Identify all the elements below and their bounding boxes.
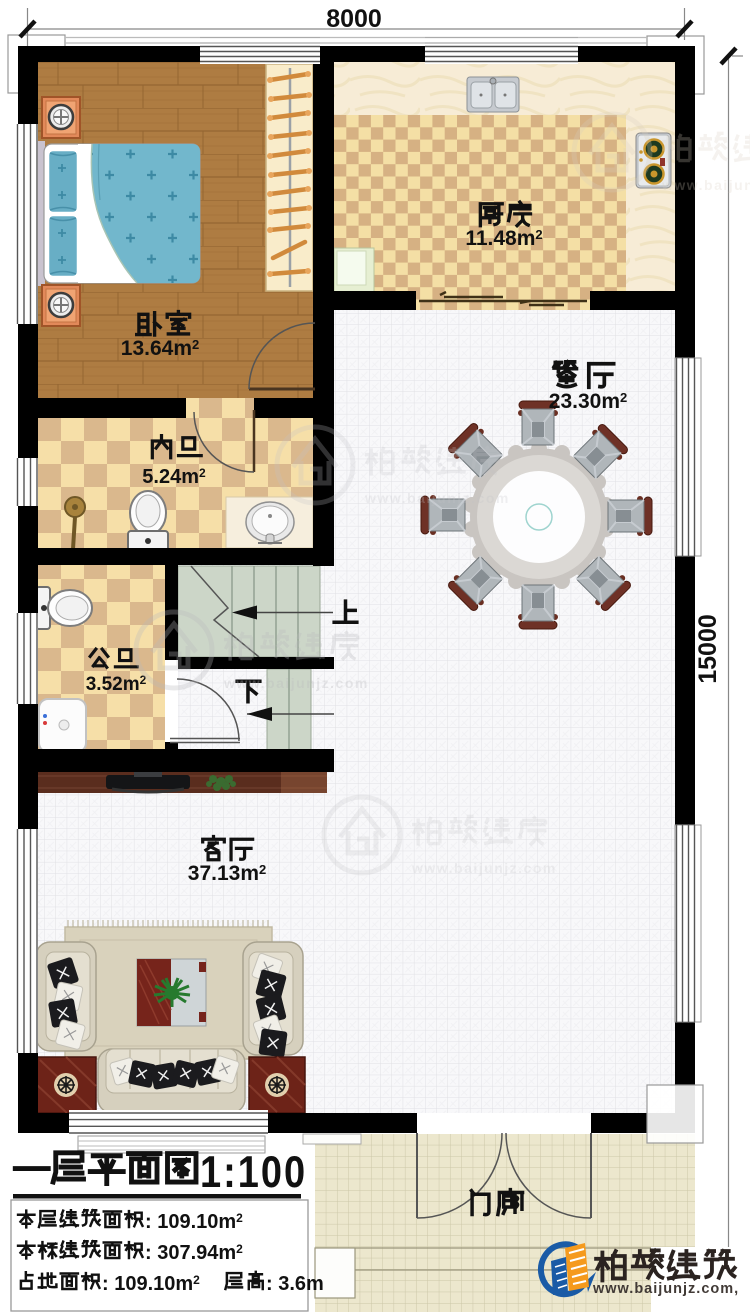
svg-text:: 307.94m2: : 307.94m2 — [145, 1242, 243, 1264]
svg-text:8000: 8000 — [326, 5, 382, 33]
svg-text:: 3.6m: : 3.6m — [266, 1273, 324, 1295]
svg-text:13.64m2: 13.64m2 — [121, 337, 199, 360]
svg-text:3.52m2: 3.52m2 — [86, 673, 147, 695]
svg-text:: 109.10m2: : 109.10m2 — [145, 1211, 243, 1233]
svg-text:15000: 15000 — [694, 614, 722, 684]
svg-text:23.30m2: 23.30m2 — [549, 390, 627, 413]
svg-text:11.48m2: 11.48m2 — [465, 227, 542, 250]
svg-text:5.24m2: 5.24m2 — [142, 466, 206, 488]
svg-text:www.baijunjz.com,: www.baijunjz.com, — [592, 1281, 739, 1297]
svg-text:: 109.10m2: : 109.10m2 — [102, 1273, 200, 1295]
svg-text:1:100: 1:100 — [200, 1147, 307, 1196]
svg-text:37.13m2: 37.13m2 — [188, 862, 266, 885]
